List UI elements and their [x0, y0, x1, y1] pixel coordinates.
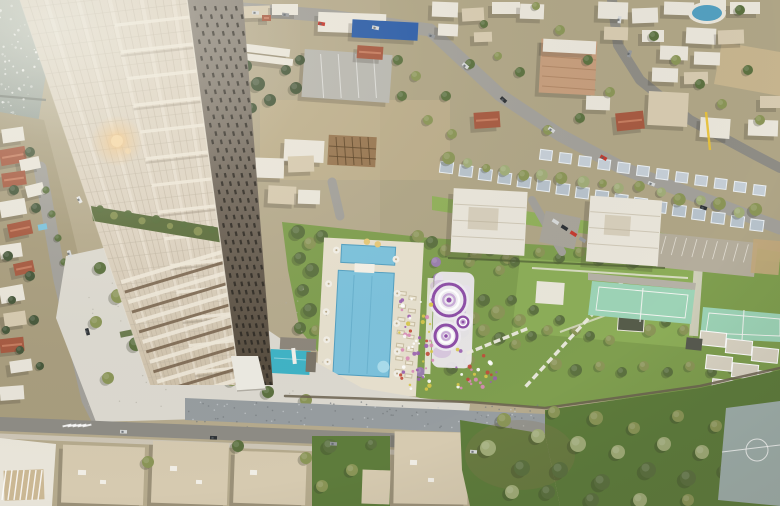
aerial-render-stage: [0, 0, 780, 506]
atmosphere: [0, 0, 780, 506]
aerial-render: [0, 0, 780, 506]
